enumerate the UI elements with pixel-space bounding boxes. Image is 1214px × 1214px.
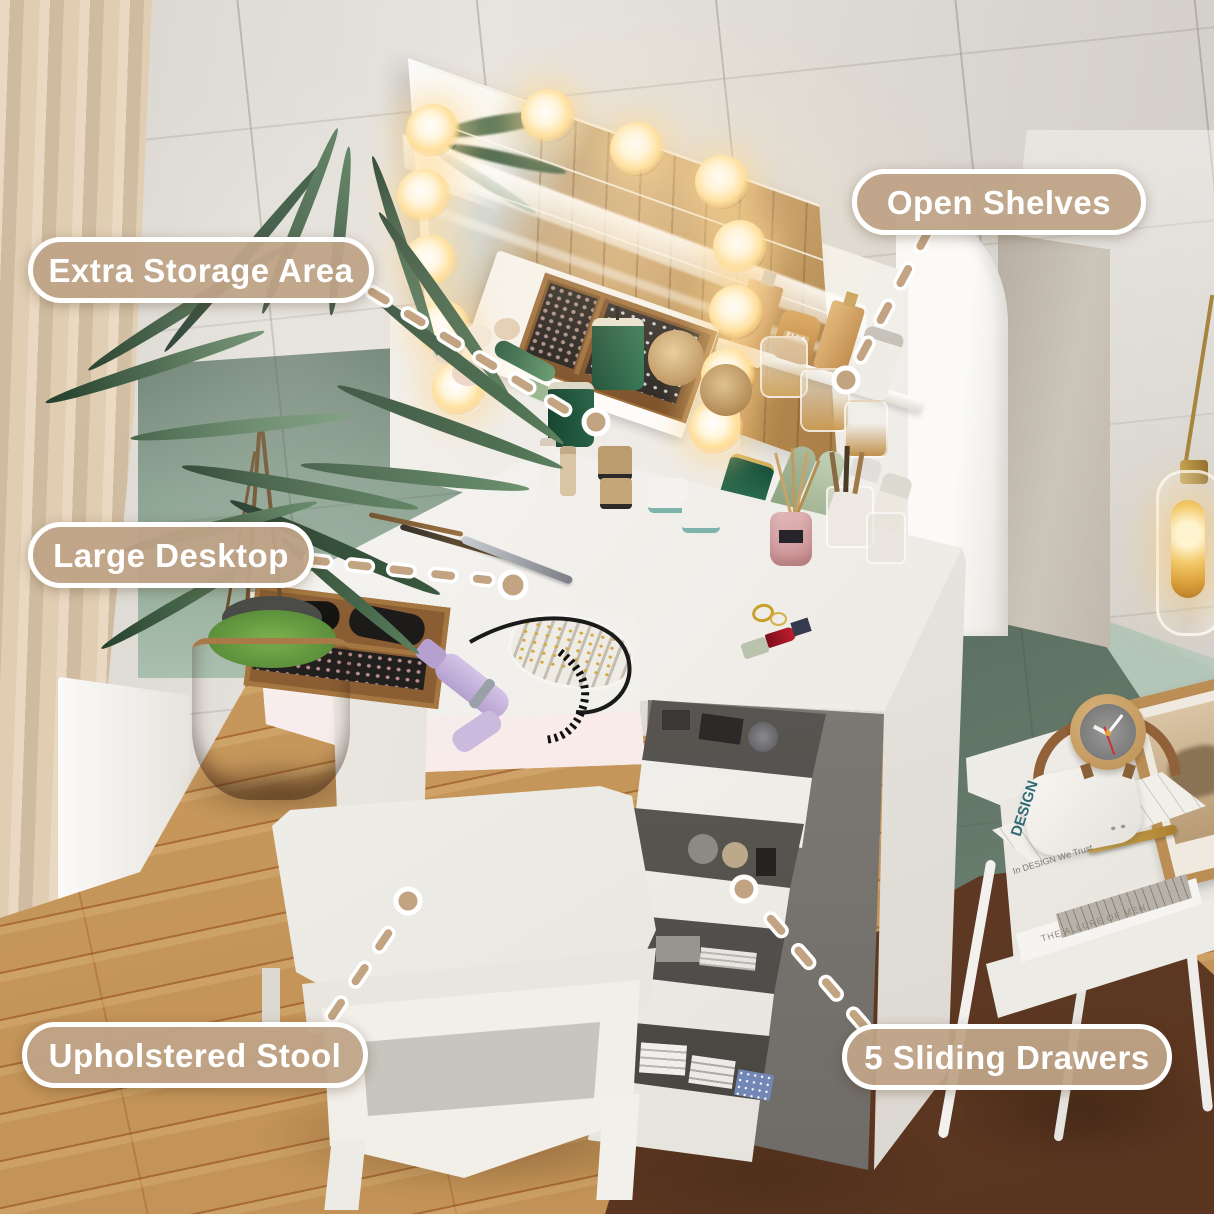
callout-large-desktop: Large Desktop xyxy=(28,522,314,588)
vanity-bulb xyxy=(713,220,767,274)
vanity-bulb xyxy=(521,89,575,143)
green-candle xyxy=(592,318,644,390)
drawer-item-white-box xyxy=(688,1055,735,1089)
pendant-bulb-mesh xyxy=(1171,500,1205,598)
reed-diffuser-bottle xyxy=(770,512,812,566)
drawer-item-bottle xyxy=(756,848,776,876)
callout-open-shelves: Open Shelves xyxy=(852,169,1146,235)
makeup-pad xyxy=(494,318,520,340)
hutch-side-face xyxy=(998,224,1110,648)
wicker-basket xyxy=(192,638,350,800)
callout-label: Upholstered Stool xyxy=(49,1039,342,1072)
wooden-brush xyxy=(700,364,752,416)
drawer-item-white-box xyxy=(639,1042,687,1075)
stacked-jar xyxy=(598,446,632,480)
callout-extra-storage: Extra Storage Area xyxy=(28,237,374,303)
cream-tub xyxy=(682,500,720,533)
clock-face xyxy=(1080,704,1136,760)
gold-ring xyxy=(770,612,787,626)
clock-center-dot xyxy=(1105,730,1111,736)
gold-jewelry-dots xyxy=(514,617,621,679)
drawer-item-box xyxy=(656,936,700,962)
diffuser-label xyxy=(779,530,803,543)
callout-sliding-drawers: 5 Sliding Drawers xyxy=(842,1024,1172,1090)
vanity-bulb xyxy=(695,155,749,209)
slim-bottle xyxy=(560,446,576,496)
drawer-item-dark xyxy=(662,710,690,730)
clear-perfume-bottle xyxy=(844,400,888,458)
callout-label: Open Shelves xyxy=(887,186,1111,219)
candle-wick xyxy=(616,306,619,320)
annotated-product-photo: ELLA xyxy=(0,0,1214,1214)
stool-leg xyxy=(596,1094,639,1200)
callout-label: Large Desktop xyxy=(53,539,289,572)
stacked-jar xyxy=(600,478,632,509)
vanity-bulb xyxy=(397,169,451,223)
drawer-item-jar xyxy=(722,842,748,868)
wooden-brush xyxy=(648,330,704,386)
pencil-cup xyxy=(866,512,906,564)
vanity-bulb xyxy=(709,285,763,339)
callout-upholstered-stool: Upholstered Stool xyxy=(22,1022,368,1088)
stool-leg xyxy=(262,968,280,1030)
vanity-bulb xyxy=(610,122,664,176)
drawer-item-jar xyxy=(688,834,718,864)
clear-perfume-bottle xyxy=(800,368,850,432)
vanity-bulb xyxy=(406,104,460,158)
drawer-item-round xyxy=(748,722,778,752)
callout-label: Extra Storage Area xyxy=(49,254,354,287)
callout-label: 5 Sliding Drawers xyxy=(864,1041,1149,1074)
alarm-clock xyxy=(1070,694,1146,770)
